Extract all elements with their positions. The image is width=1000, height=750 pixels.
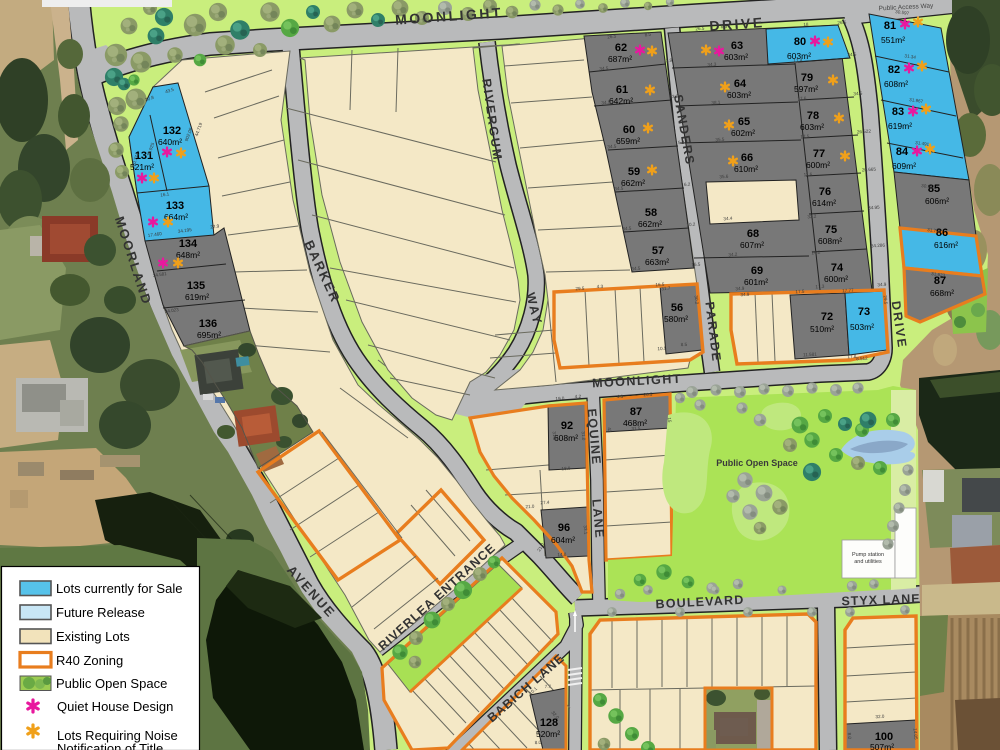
svg-text:Future Release: Future Release: [56, 605, 145, 620]
svg-text:Pump station: Pump station: [852, 552, 884, 558]
svg-text:619m²: 619m²: [185, 292, 209, 302]
svg-text:668m²: 668m²: [930, 288, 954, 298]
svg-text:4.3: 4.3: [597, 284, 604, 289]
svg-text:STYX LANE: STYX LANE: [841, 592, 921, 609]
svg-text:38.1: 38.1: [711, 100, 721, 106]
svg-text:17.3: 17.3: [815, 284, 825, 290]
svg-text:659m²: 659m²: [616, 136, 640, 146]
svg-text:8.512: 8.512: [856, 356, 868, 362]
svg-text:34.5: 34.5: [631, 266, 641, 272]
svg-text:687m²: 687m²: [608, 54, 632, 64]
svg-text:136: 136: [199, 318, 217, 330]
svg-text:510m²: 510m²: [810, 324, 834, 334]
svg-text:Public Open Space: Public Open Space: [716, 458, 798, 468]
svg-text:17.5: 17.5: [800, 134, 810, 140]
svg-text:58: 58: [645, 207, 657, 219]
svg-text:17.77: 17.77: [842, 288, 854, 294]
svg-text:10.5: 10.5: [657, 346, 667, 351]
svg-text:695m²: 695m²: [197, 330, 221, 340]
svg-text:648m²: 648m²: [176, 250, 200, 260]
svg-text:614m²: 614m²: [812, 198, 836, 208]
svg-text:75: 75: [825, 224, 837, 236]
svg-text:76: 76: [819, 186, 831, 198]
svg-text:603m²: 603m²: [727, 90, 751, 100]
svg-text:32.0: 32.0: [875, 714, 885, 719]
svg-text:56: 56: [671, 302, 683, 314]
svg-text:Public Open Space: Public Open Space: [56, 676, 167, 691]
svg-text:16.2: 16.2: [681, 182, 691, 188]
svg-text:34.5: 34.5: [614, 186, 624, 192]
svg-text:8.5: 8.5: [681, 342, 688, 347]
svg-text:R40 Zoning: R40 Zoning: [56, 653, 123, 668]
svg-text:31.0: 31.0: [552, 431, 558, 441]
svg-text:62: 62: [615, 42, 627, 54]
svg-text:83: 83: [892, 106, 904, 118]
svg-text:33.1: 33.1: [583, 525, 589, 535]
svg-text:14.05: 14.05: [913, 728, 919, 740]
svg-text:74: 74: [831, 262, 844, 274]
svg-text:8.5: 8.5: [644, 32, 651, 38]
svg-text:Notification of Title: Notification of Title: [57, 741, 163, 750]
svg-text:503m²: 503m²: [850, 322, 874, 332]
svg-text:34.3: 34.3: [707, 62, 717, 68]
svg-text:17.5: 17.5: [795, 289, 805, 294]
svg-text:87: 87: [630, 406, 642, 418]
svg-text:and utilities: and utilities: [854, 559, 882, 565]
svg-text:35.5: 35.5: [715, 137, 725, 143]
svg-text:600m²: 600m²: [824, 274, 848, 284]
svg-text:11.581: 11.581: [803, 352, 817, 358]
svg-text:77: 77: [813, 148, 825, 160]
svg-text:34.4: 34.4: [723, 216, 733, 222]
svg-text:Existing Lots: Existing Lots: [56, 629, 130, 644]
svg-text:601m²: 601m²: [744, 277, 768, 287]
svg-text:14.8: 14.8: [557, 552, 567, 557]
svg-text:520m²: 520m²: [536, 729, 560, 739]
svg-text:65: 65: [738, 116, 750, 128]
svg-text:662m²: 662m²: [638, 219, 662, 229]
svg-text:662m²: 662m²: [621, 178, 645, 188]
svg-text:34.95: 34.95: [868, 205, 880, 211]
svg-text:663m²: 663m²: [645, 257, 669, 267]
svg-text:17.4: 17.4: [793, 58, 803, 64]
svg-text:18: 18: [803, 22, 809, 27]
svg-text:607m²: 607m²: [740, 240, 764, 250]
svg-text:80: 80: [794, 36, 806, 48]
svg-text:34.5: 34.5: [607, 144, 617, 150]
svg-text:616m²: 616m²: [934, 240, 958, 250]
svg-text:16.5: 16.5: [691, 262, 701, 268]
svg-text:11.6: 11.6: [803, 172, 812, 178]
svg-text:597m²: 597m²: [794, 84, 818, 94]
svg-text:64: 64: [734, 78, 747, 90]
svg-text:34.5: 34.5: [599, 66, 609, 72]
svg-text:133: 133: [166, 200, 184, 212]
svg-text:10.2: 10.2: [686, 222, 696, 228]
svg-text:69: 69: [751, 265, 763, 277]
svg-text:13.2: 13.2: [669, 94, 679, 100]
svg-text:26.522: 26.522: [857, 128, 872, 134]
svg-text:600m²: 600m²: [806, 160, 830, 170]
svg-text:31.5: 31.5: [631, 426, 641, 431]
svg-text:Lots currently for Sale: Lots currently for Sale: [56, 581, 182, 596]
svg-text:92: 92: [561, 420, 573, 432]
svg-text:640m²: 640m²: [158, 137, 182, 147]
svg-text:8.0: 8.0: [535, 740, 542, 745]
svg-text:8.0: 8.0: [847, 732, 853, 739]
svg-text:82: 82: [888, 64, 900, 76]
svg-text:31.0: 31.0: [581, 431, 587, 441]
svg-text:132: 132: [163, 125, 181, 137]
svg-text:507m²: 507m²: [870, 742, 894, 750]
svg-text:551m²: 551m²: [881, 35, 905, 45]
svg-text:66: 66: [741, 152, 753, 164]
svg-text:606m²: 606m²: [925, 196, 949, 206]
svg-text:135: 135: [187, 280, 205, 292]
svg-text:59: 59: [628, 166, 640, 178]
svg-text:8.5: 8.5: [721, 24, 728, 29]
svg-text:61: 61: [616, 84, 628, 96]
svg-text:73: 73: [858, 306, 870, 318]
svg-text:26.5: 26.5: [695, 26, 705, 32]
svg-text:57: 57: [652, 245, 664, 257]
svg-text:20.665: 20.665: [862, 166, 877, 172]
svg-text:604m²: 604m²: [551, 535, 575, 545]
svg-text:14.2: 14.2: [811, 250, 821, 256]
svg-text:619m²: 619m²: [888, 121, 912, 131]
svg-text:43: 43: [607, 427, 612, 433]
svg-text:96: 96: [558, 522, 570, 534]
svg-text:79: 79: [801, 72, 813, 84]
svg-text:63: 63: [731, 40, 743, 52]
svg-text:Quiet House Design: Quiet House Design: [57, 699, 173, 714]
svg-text:30.2: 30.2: [694, 295, 700, 305]
svg-text:34.9: 34.9: [877, 282, 887, 288]
svg-text:29.5: 29.5: [883, 295, 889, 305]
svg-text:603m²: 603m²: [724, 52, 748, 62]
svg-text:34.2: 34.2: [728, 252, 738, 258]
svg-text:26.5: 26.5: [837, 20, 847, 26]
svg-text:34.9: 34.9: [735, 286, 745, 292]
svg-text:29.5: 29.5: [575, 286, 585, 291]
svg-text:134: 134: [179, 238, 198, 250]
svg-text:608m²: 608m²: [818, 236, 842, 246]
svg-text:84: 84: [896, 146, 909, 158]
svg-text:15: 15: [667, 417, 672, 423]
svg-text:19.0: 19.0: [555, 396, 565, 401]
svg-text:7.7: 7.7: [545, 684, 552, 689]
svg-text:610m²: 610m²: [734, 164, 758, 174]
svg-text:17.6: 17.6: [797, 96, 807, 102]
svg-text:35.6: 35.6: [719, 174, 729, 180]
svg-text:26.5: 26.5: [643, 392, 653, 397]
svg-text:18.0: 18.0: [561, 466, 571, 471]
svg-text:24.5: 24.5: [847, 52, 857, 58]
svg-text:81: 81: [884, 20, 896, 32]
svg-text:34.5: 34.5: [601, 100, 611, 106]
svg-text:603m²: 603m²: [800, 122, 824, 132]
svg-text:608m²: 608m²: [884, 79, 908, 89]
svg-text:16.5: 16.5: [655, 282, 665, 287]
svg-text:609m²: 609m²: [892, 161, 916, 171]
svg-text:642m²: 642m²: [609, 96, 633, 106]
svg-text:34.5: 34.5: [622, 226, 632, 232]
svg-text:60: 60: [623, 124, 635, 136]
svg-text:11.9: 11.9: [663, 58, 672, 64]
svg-text:34.286: 34.286: [871, 242, 886, 248]
svg-text:4.3: 4.3: [617, 394, 624, 399]
svg-text:580m²: 580m²: [664, 314, 688, 324]
svg-text:34.9: 34.9: [740, 292, 750, 297]
svg-text:32.2: 32.2: [807, 214, 817, 220]
svg-text:15.2: 15.2: [675, 140, 685, 146]
svg-text:34.5: 34.5: [853, 91, 863, 97]
svg-text:72: 72: [821, 311, 833, 323]
svg-text:602m²: 602m²: [731, 128, 755, 138]
svg-text:78: 78: [807, 110, 819, 122]
svg-text:68: 68: [747, 228, 759, 240]
svg-text:27.4: 27.4: [540, 500, 550, 505]
svg-text:4.2: 4.2: [575, 394, 582, 399]
svg-text:21.0: 21.0: [525, 504, 535, 509]
